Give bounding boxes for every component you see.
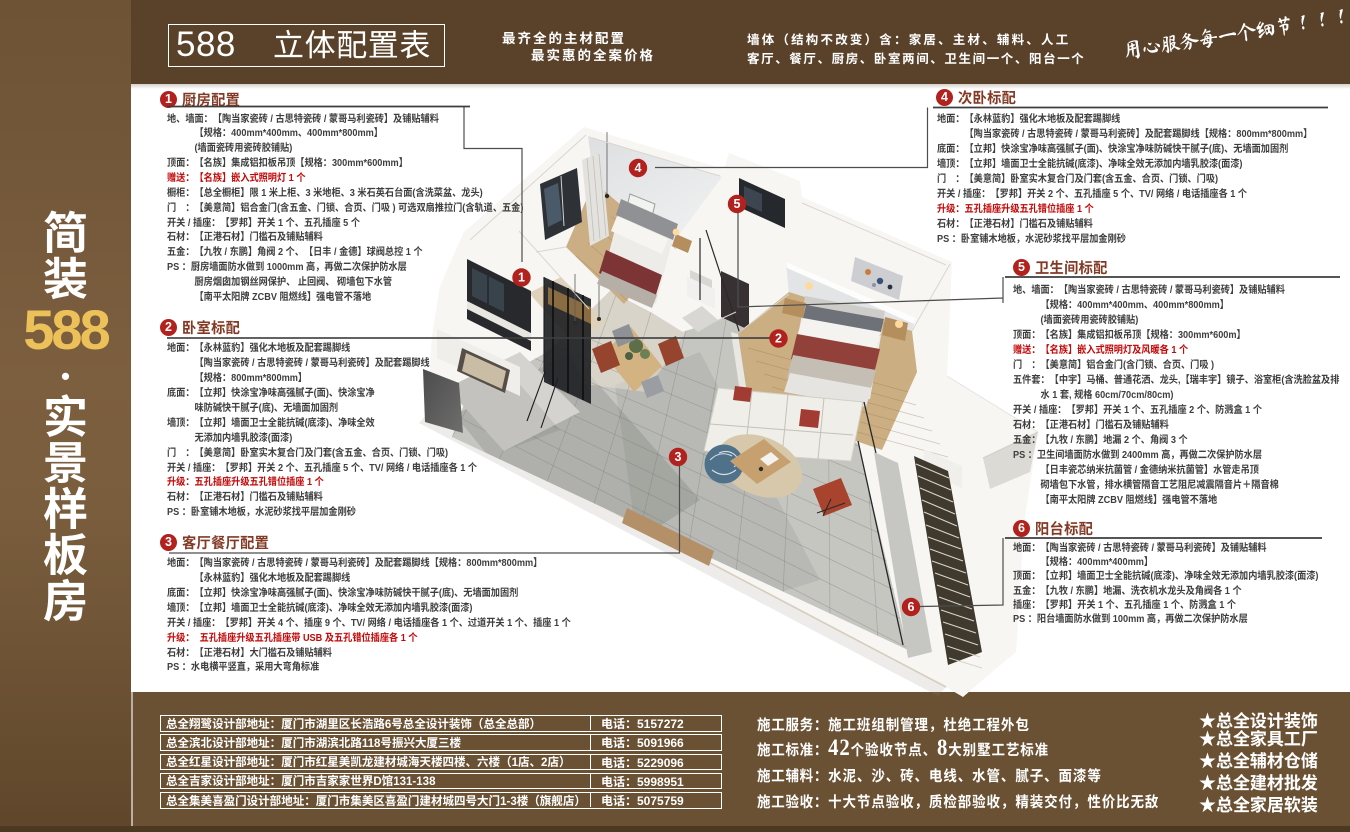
svg-text:3: 3 xyxy=(675,450,682,464)
svg-text:6: 6 xyxy=(908,600,915,614)
svg-text:1: 1 xyxy=(518,271,525,285)
svg-text:2: 2 xyxy=(775,332,782,346)
svg-text:4: 4 xyxy=(635,161,642,175)
svg-text:5: 5 xyxy=(734,197,741,211)
